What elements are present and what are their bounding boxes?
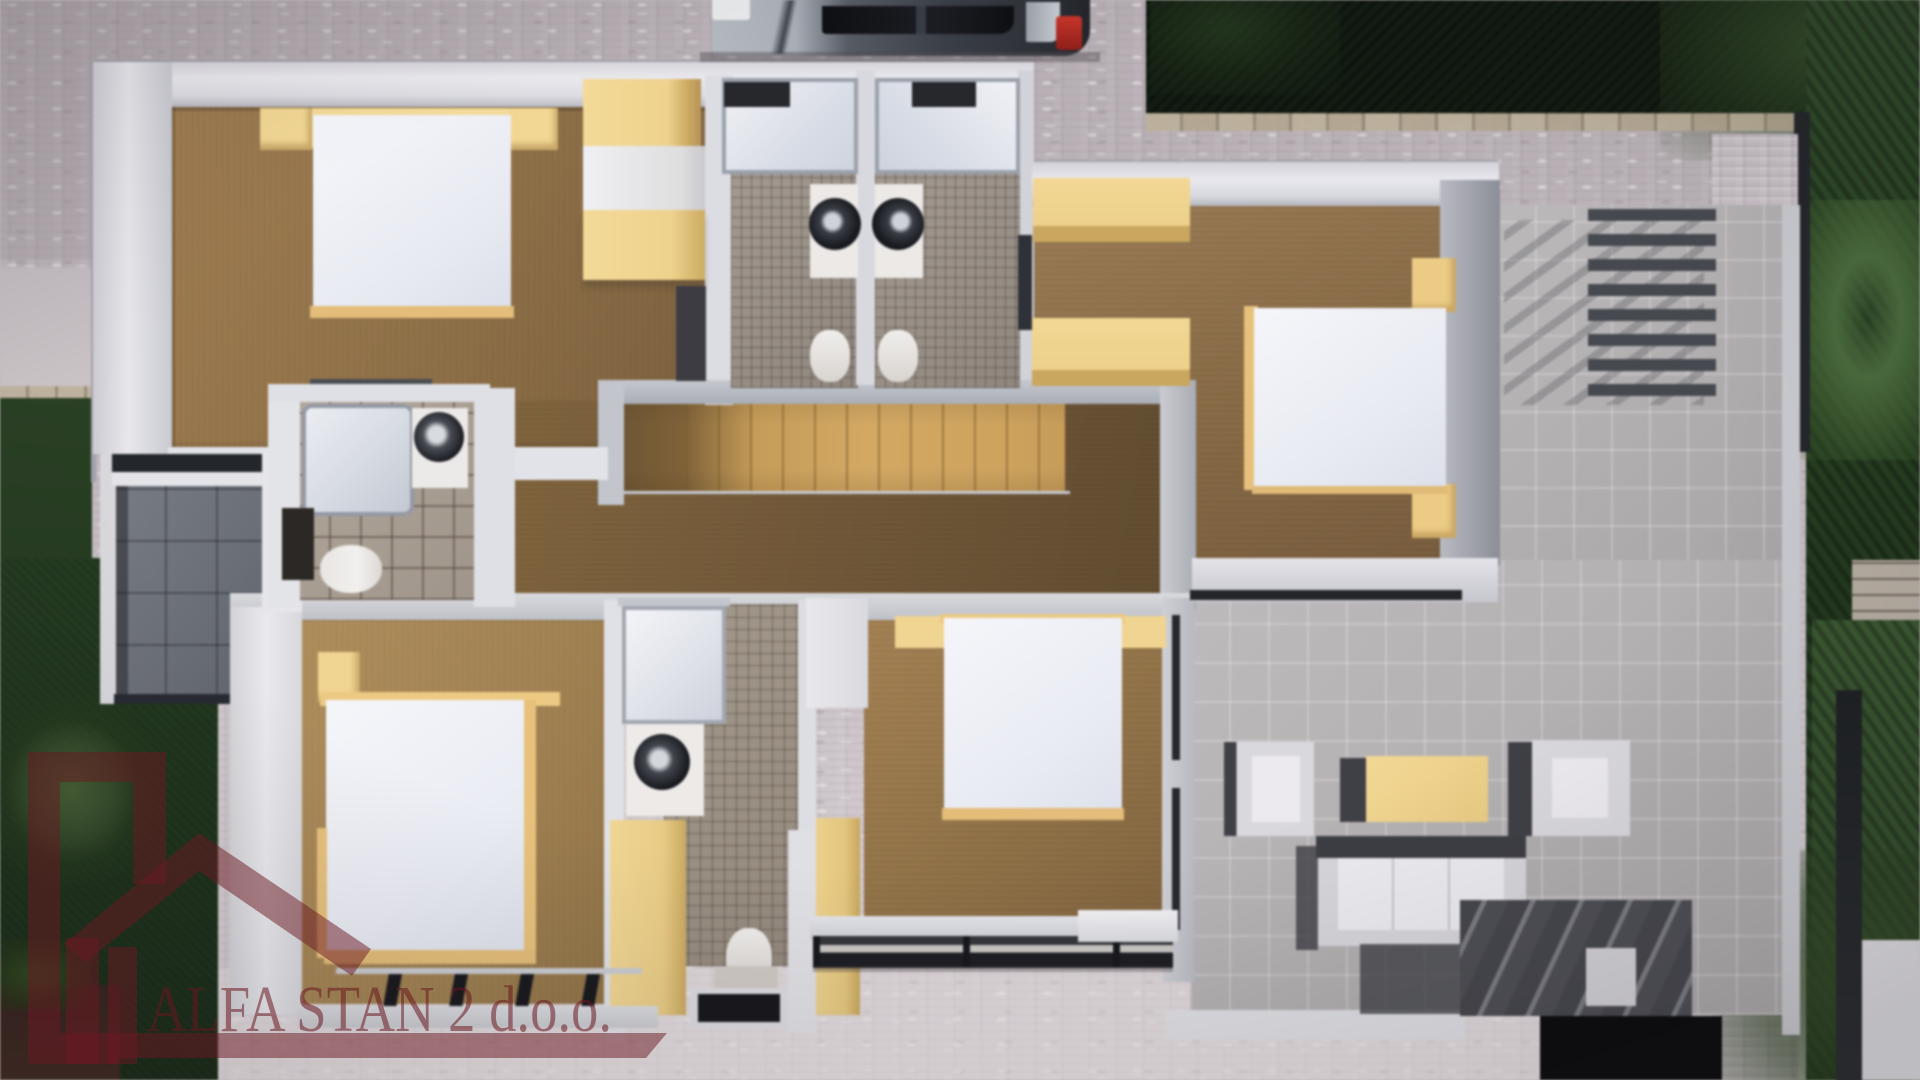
svg-text:ALFA STAN 2 d.o.o.: ALFA STAN 2 d.o.o. bbox=[147, 973, 612, 1046]
